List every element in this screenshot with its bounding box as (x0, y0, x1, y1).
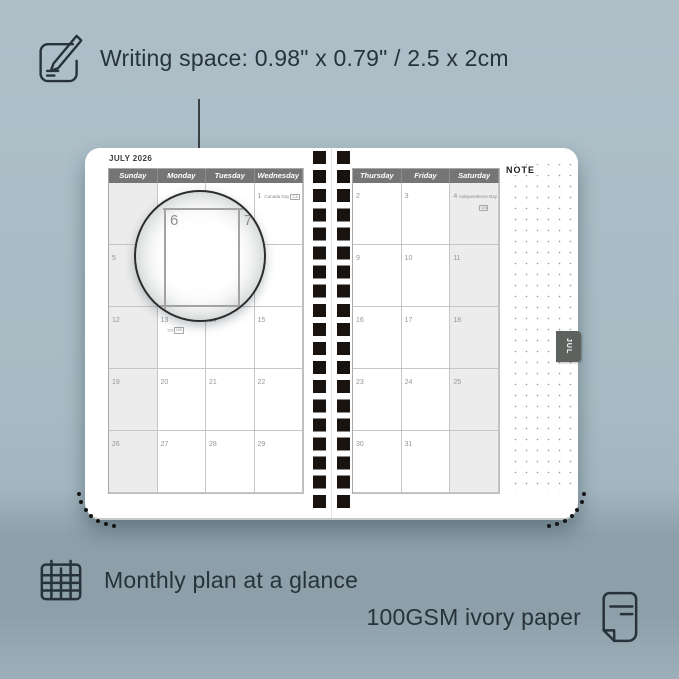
date-number: 11 (453, 255, 460, 262)
date-number: 28 (209, 441, 217, 448)
monthly-plan-caption: Monthly plan at a glance (38, 557, 358, 603)
day-header: Sunday (109, 169, 158, 183)
calendar-cell: 10 (402, 245, 451, 307)
paper-sheet-icon (597, 590, 639, 644)
calendar-cell: 4Independence DayUS (450, 183, 499, 245)
pencil-note-icon (36, 32, 84, 84)
lens-grid-line (164, 208, 166, 322)
stitch-dot (89, 514, 93, 518)
calendar-cell: 12 (109, 307, 158, 369)
date-number: 10 (405, 255, 413, 262)
lens-grid-line (163, 208, 266, 210)
calendar-cell: 18 (450, 307, 499, 369)
monthly-plan-text: Monthly plan at a glance (104, 567, 358, 594)
date-number: 26 (112, 441, 120, 448)
calendar-cell: 17 (402, 307, 451, 369)
calendar-cell: 20 (158, 369, 207, 431)
calendar-cell: 30 (353, 431, 402, 493)
date-number: 12 (112, 317, 120, 324)
calendar-grid-icon (38, 557, 84, 603)
date-number: 24 (405, 379, 413, 386)
lens-grid-line (136, 305, 266, 307)
calendar-cell: 16 (353, 307, 402, 369)
stitch-dot (77, 492, 81, 496)
day-header: Tuesday (206, 169, 255, 183)
lens-day-6: 6 (170, 212, 178, 229)
calendar-cell: 19 (109, 369, 158, 431)
calendar-cell: 22 (255, 369, 304, 431)
calendar-right-page: ThursdayFridaySaturday234Independence Da… (352, 168, 500, 494)
date-number: 17 (405, 317, 413, 324)
lens-grid-line (238, 208, 240, 322)
stitch-dot (570, 514, 574, 518)
calendar-cell: 11 (450, 245, 499, 307)
stitch-dot (563, 519, 567, 523)
day-header: Monday (158, 169, 207, 183)
holiday-label: Independence Day (459, 194, 497, 199)
stitch-dot (555, 522, 559, 526)
binding-holes-right (337, 151, 350, 512)
calendar-cell: 31 (402, 431, 451, 493)
day-header: Friday (402, 169, 451, 183)
date-number: 27 (161, 441, 169, 448)
holiday-label: EidUS (168, 327, 205, 334)
date-number: 15 (258, 317, 266, 324)
date-number: 21 (209, 379, 217, 386)
holiday-label: Canada DayCA (264, 194, 300, 199)
date-number: 30 (356, 441, 364, 448)
date-number: 25 (453, 379, 461, 386)
date-number: 1 (258, 193, 262, 200)
stitch-dot (575, 508, 579, 512)
page-gutter (331, 148, 332, 518)
stitch-dot (547, 524, 551, 528)
note-title: NOTE (506, 165, 538, 175)
calendar-cell (450, 431, 499, 493)
date-number: 31 (405, 441, 413, 448)
paper-text: 100GSM ivory paper (366, 604, 581, 631)
month-tab-jul: JUL (556, 331, 581, 362)
calendar-cell: 9 (353, 245, 402, 307)
date-number: 16 (356, 317, 364, 324)
stitch-dot (582, 492, 586, 496)
lens-day-7: 7 (244, 212, 252, 229)
country-code-badge: US (174, 327, 184, 334)
date-number: 29 (258, 441, 266, 448)
magnifier-lens: 6 7 (134, 190, 266, 322)
stitch-dot (112, 524, 116, 528)
date-number: 20 (161, 379, 169, 386)
stitch-dot (580, 500, 584, 504)
stitch-dot (104, 522, 108, 526)
calendar-cell: 28 (206, 431, 255, 493)
date-number: 22 (258, 379, 266, 386)
date-number: 2 (356, 193, 360, 200)
calendar-cell: 24 (402, 369, 451, 431)
calendar-cell: 23 (353, 369, 402, 431)
calendar-cell: 15 (255, 307, 304, 369)
stitch-dot (84, 508, 88, 512)
date-number: 18 (453, 317, 461, 324)
calendar-cell: 25 (450, 369, 499, 431)
month-title: JULY 2026 (109, 154, 152, 163)
day-header: Saturday (450, 169, 499, 183)
country-code-badge: CA (290, 194, 300, 201)
calendar-cell: 3 (402, 183, 451, 245)
calendar-cell: 26 (109, 431, 158, 493)
stitch-dot (96, 519, 100, 523)
binding-holes-left (313, 151, 326, 512)
country-code-badge: US (479, 205, 488, 212)
stitch-dot (79, 500, 83, 504)
day-header: Wednesday (255, 169, 304, 183)
date-number: 19 (112, 379, 120, 386)
day-header: Thursday (353, 169, 402, 183)
writing-space-text: Writing space: 0.98" x 0.79" / 2.5 x 2cm (100, 45, 509, 72)
paper-caption: 100GSM ivory paper (366, 590, 639, 644)
calendar-cell: 27 (158, 431, 207, 493)
calendar-cell: 29 (255, 431, 304, 493)
writing-space-caption: Writing space: 0.98" x 0.79" / 2.5 x 2cm (36, 32, 509, 84)
date-number: 4 (453, 193, 457, 200)
date-number: 5 (112, 255, 116, 262)
date-number: 9 (356, 255, 360, 262)
note-dot-grid (506, 164, 573, 494)
product-infographic: Writing space: 0.98" x 0.79" / 2.5 x 2cm… (0, 0, 679, 679)
date-number: 3 (405, 193, 409, 200)
calendar-cell: 21 (206, 369, 255, 431)
calendar-cell: 2 (353, 183, 402, 245)
date-number: 23 (356, 379, 364, 386)
